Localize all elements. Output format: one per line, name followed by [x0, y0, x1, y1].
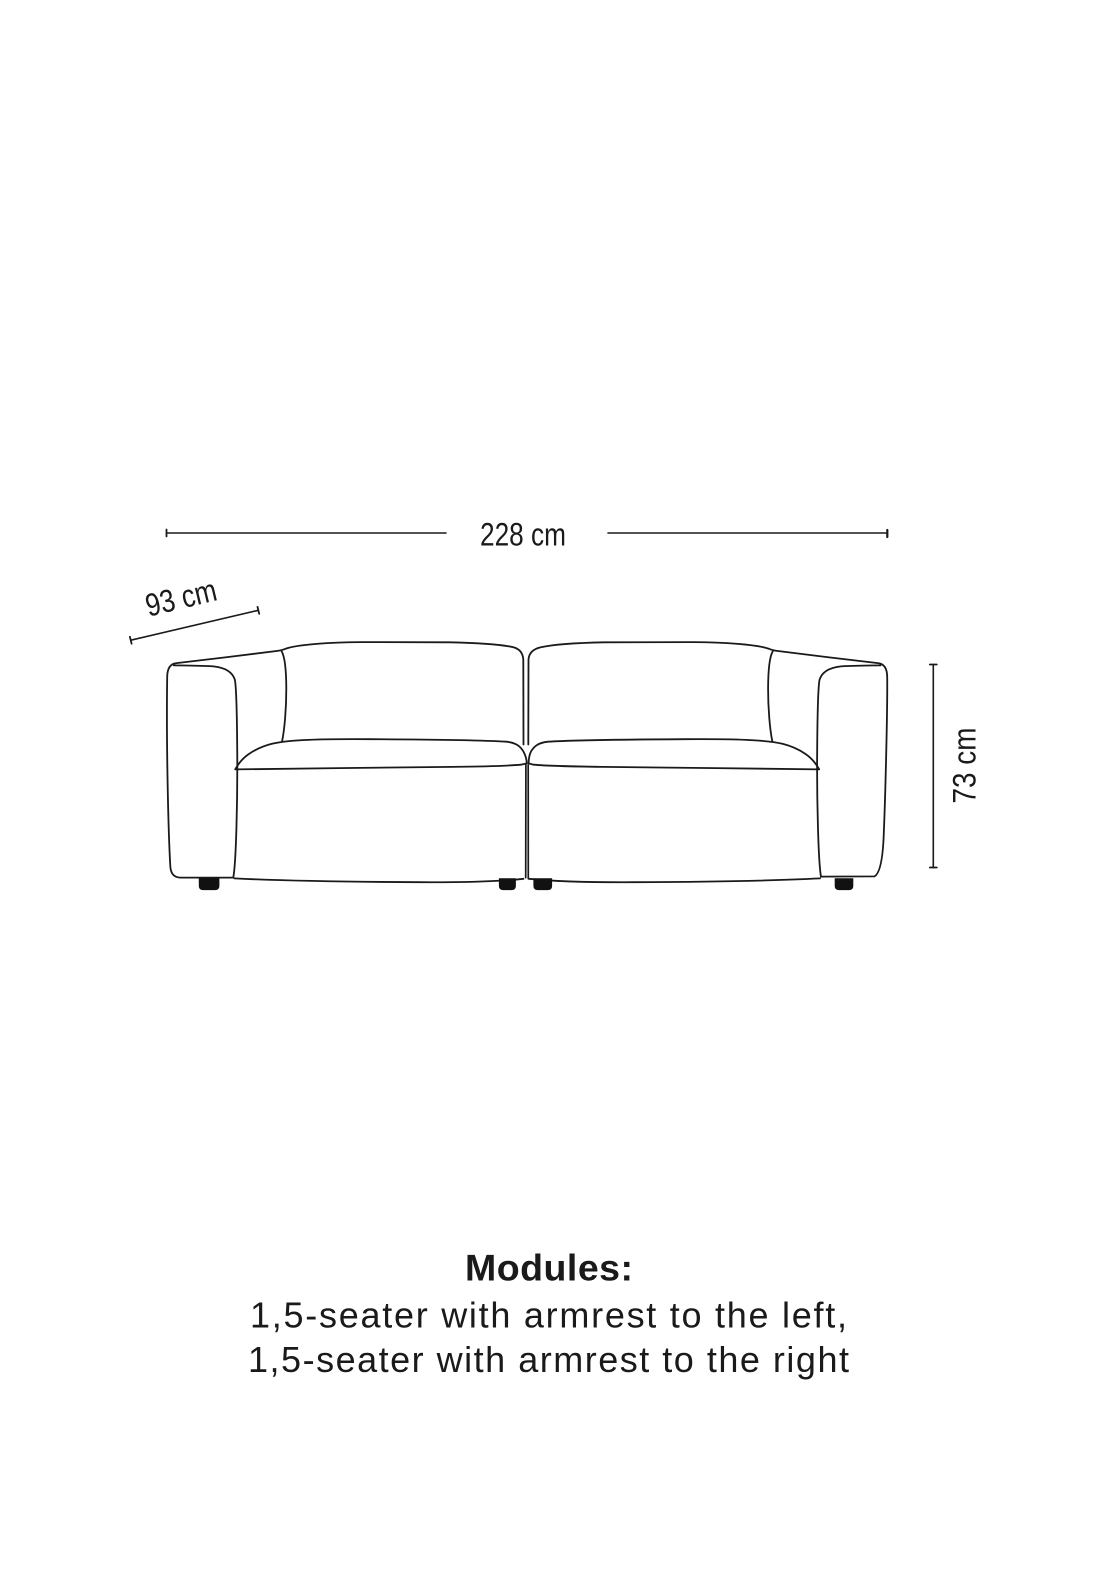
svg-text:1,5-seater with armrest to the: 1,5-seater with armrest to the left,	[250, 1295, 847, 1336]
svg-text:228 cm: 228 cm	[480, 517, 566, 553]
svg-text:73 cm: 73 cm	[947, 728, 983, 804]
svg-text:Modules:: Modules:	[465, 1247, 633, 1289]
svg-text:93 cm: 93 cm	[142, 572, 220, 624]
svg-text:1,5-seater with armrest to the: 1,5-seater with armrest to the right	[248, 1339, 849, 1380]
